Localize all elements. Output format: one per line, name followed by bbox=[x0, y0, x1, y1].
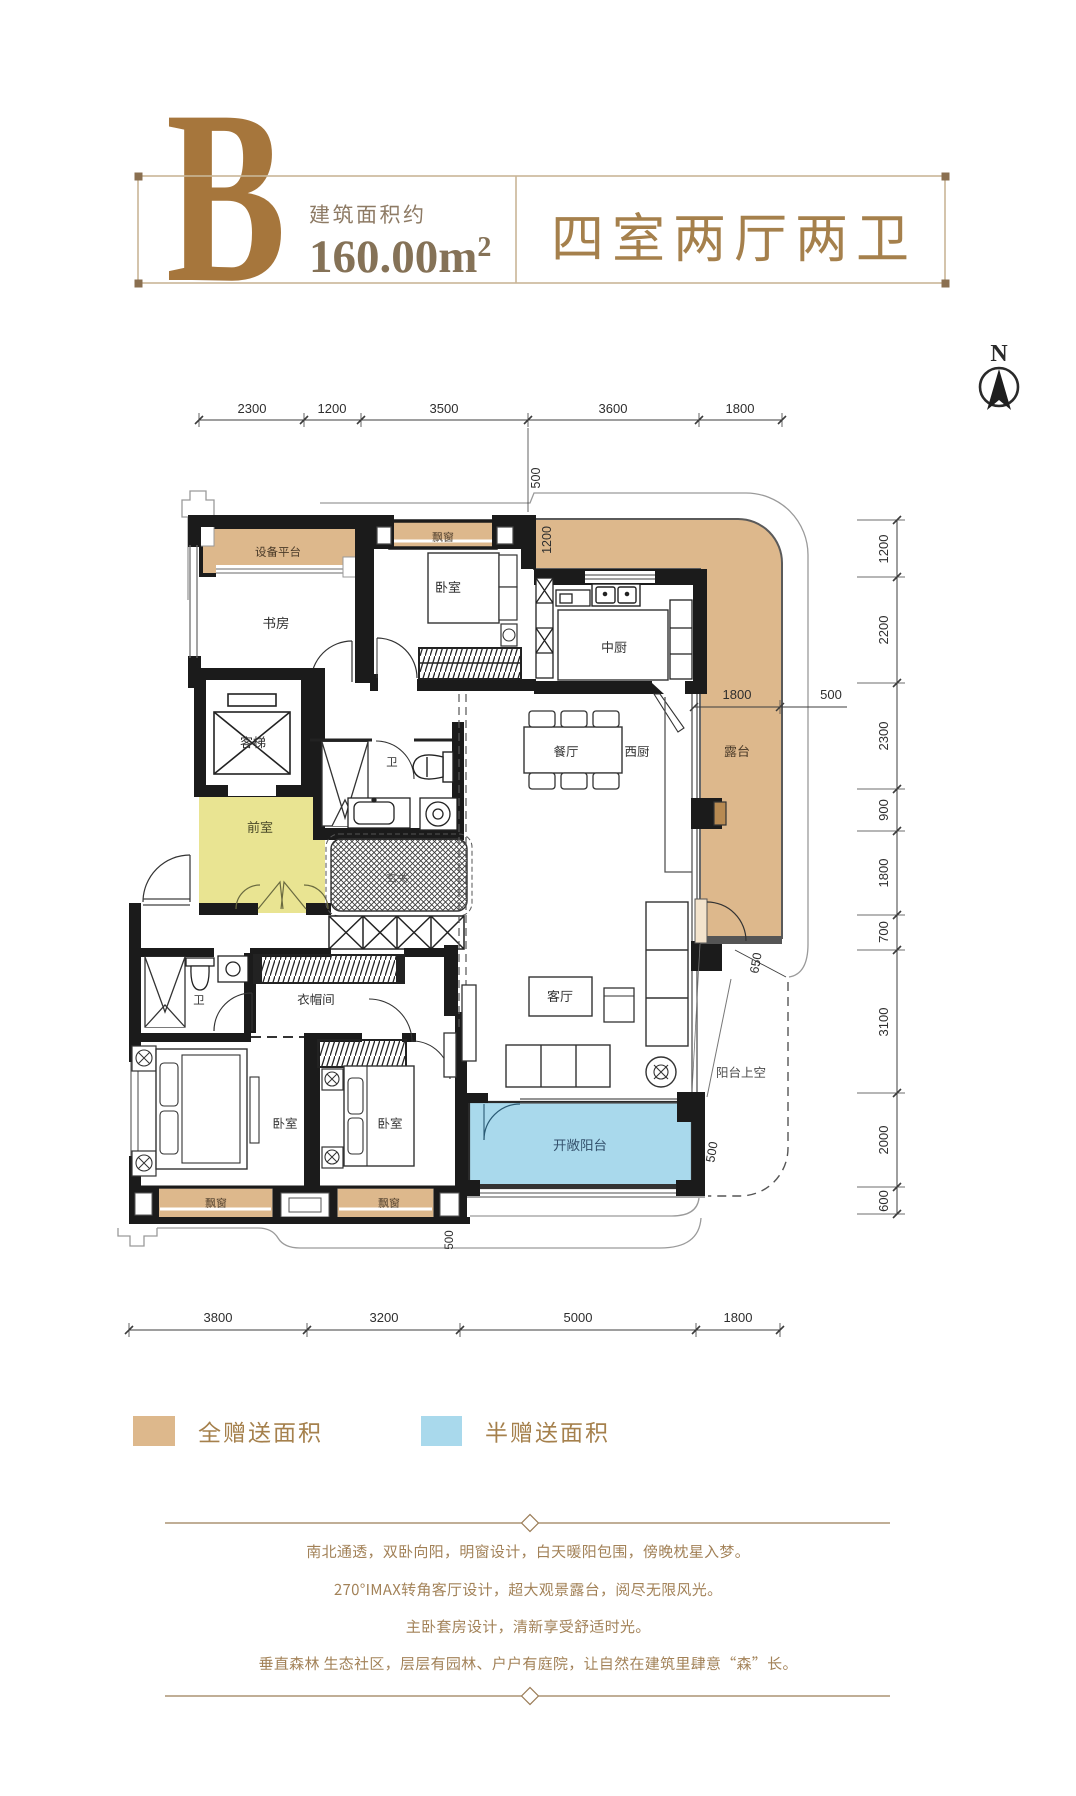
svg-text:1200: 1200 bbox=[318, 401, 347, 416]
svg-text:3600: 3600 bbox=[599, 401, 628, 416]
svg-text:2000: 2000 bbox=[876, 1126, 891, 1155]
svg-text:600: 600 bbox=[876, 1190, 891, 1212]
svg-text:2200: 2200 bbox=[876, 616, 891, 645]
svg-text:5000: 5000 bbox=[564, 1310, 593, 1325]
svg-text:2300: 2300 bbox=[238, 401, 267, 416]
svg-text:1200: 1200 bbox=[540, 526, 554, 554]
svg-text:500: 500 bbox=[820, 687, 842, 702]
svg-text:N: N bbox=[990, 341, 1008, 367]
svg-text:1800: 1800 bbox=[723, 687, 752, 702]
svg-text:1800: 1800 bbox=[726, 401, 755, 416]
svg-text:900: 900 bbox=[876, 799, 891, 821]
svg-text:1800: 1800 bbox=[724, 1310, 753, 1325]
svg-text:B: B bbox=[166, 59, 286, 334]
svg-text:160.00m2: 160.00m2 bbox=[309, 231, 491, 283]
svg-text:650: 650 bbox=[747, 951, 764, 974]
svg-text:3800: 3800 bbox=[204, 1310, 233, 1325]
svg-text:3100: 3100 bbox=[876, 1008, 891, 1037]
svg-text:3500: 3500 bbox=[430, 401, 459, 416]
svg-text:500: 500 bbox=[703, 1140, 720, 1163]
svg-text:1200: 1200 bbox=[876, 535, 891, 564]
svg-text:700: 700 bbox=[876, 921, 891, 943]
svg-text:1800: 1800 bbox=[876, 859, 891, 888]
svg-text:2300: 2300 bbox=[876, 722, 891, 751]
svg-text:500: 500 bbox=[529, 468, 543, 489]
svg-text:500: 500 bbox=[444, 1230, 456, 1249]
svg-text:3200: 3200 bbox=[370, 1310, 399, 1325]
